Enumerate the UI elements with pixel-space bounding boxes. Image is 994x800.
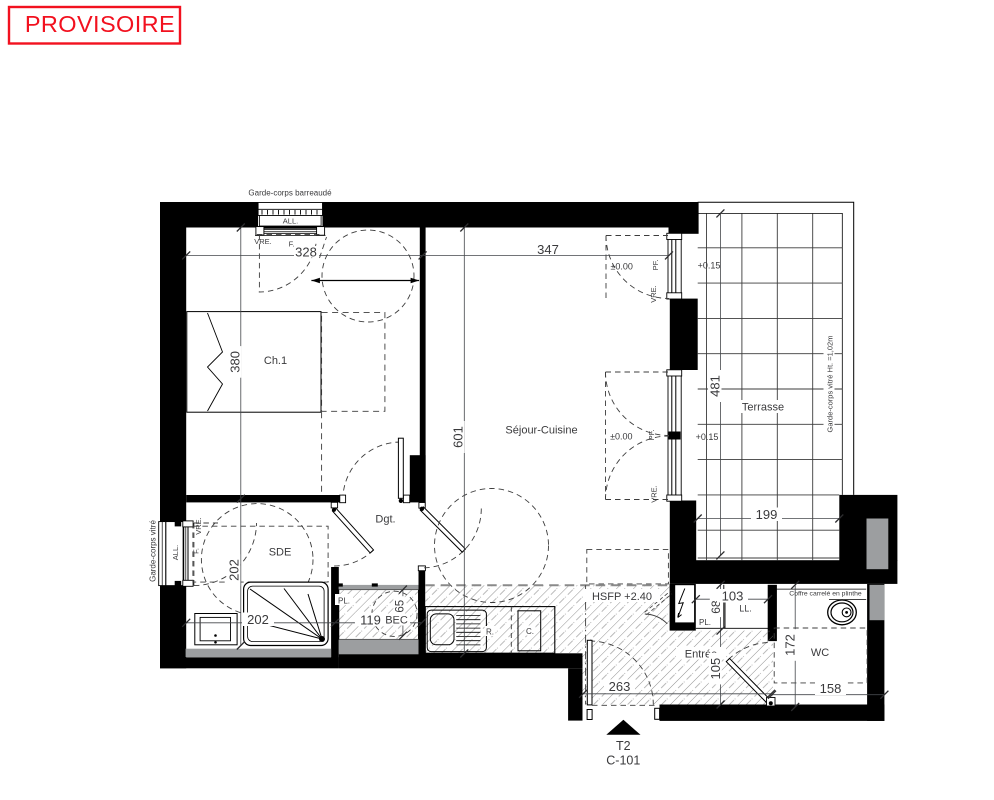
svg-text:WC: WC <box>811 647 829 659</box>
svg-text:ALL.: ALL. <box>283 217 298 226</box>
svg-text:Coffre carrelé en plinthe: Coffre carrelé en plinthe <box>789 590 862 597</box>
svg-text:172: 172 <box>782 634 797 656</box>
svg-text:Garde-corps vitré Ht. =1,02m: Garde-corps vitré Ht. =1,02m <box>825 336 834 433</box>
svg-text:Terrasse: Terrasse <box>742 402 784 414</box>
svg-text:SDE: SDE <box>269 547 292 559</box>
svg-text:+0.15: +0.15 <box>698 261 721 271</box>
svg-text:Garde-corps barreaudé: Garde-corps barreaudé <box>248 189 332 198</box>
svg-text:202: 202 <box>247 612 269 627</box>
svg-text:158: 158 <box>820 681 842 696</box>
svg-text:VRE.: VRE. <box>649 485 658 503</box>
svg-text:BEC: BEC <box>385 615 408 627</box>
svg-text:R.: R. <box>486 628 494 637</box>
svg-text:481: 481 <box>708 375 723 397</box>
svg-text:+0.15: +0.15 <box>696 432 719 442</box>
svg-text:±0.00: ±0.00 <box>610 432 632 442</box>
svg-text:65: 65 <box>395 600 407 613</box>
svg-text:103: 103 <box>722 589 744 604</box>
svg-text:ALL.: ALL. <box>171 545 180 560</box>
svg-text:F.: F. <box>192 548 201 554</box>
svg-text:C-101: C-101 <box>606 754 640 768</box>
svg-text:119: 119 <box>360 612 381 627</box>
svg-text:PF.: PF. <box>651 260 660 271</box>
svg-text:F.: F. <box>289 240 295 249</box>
svg-text:PF.: PF. <box>647 430 656 441</box>
svg-text:Dgt.: Dgt. <box>375 514 395 526</box>
svg-text:Ch.1: Ch.1 <box>264 355 287 367</box>
svg-text:199: 199 <box>756 507 778 522</box>
svg-text:PL.: PL. <box>699 618 711 627</box>
svg-text:T2: T2 <box>616 739 631 753</box>
svg-text:105: 105 <box>708 658 723 680</box>
svg-text:263: 263 <box>609 679 631 694</box>
svg-text:±0.00: ±0.00 <box>610 262 632 272</box>
svg-text:PROVISOIRE: PROVISOIRE <box>25 11 175 37</box>
svg-text:347: 347 <box>537 242 559 257</box>
svg-text:PL.: PL. <box>338 597 350 606</box>
svg-text:Séjour-Cuisine: Séjour-Cuisine <box>505 425 577 437</box>
svg-text:HSFP +2.40: HSFP +2.40 <box>592 591 652 603</box>
svg-text:380: 380 <box>227 351 242 373</box>
svg-text:328: 328 <box>295 245 317 260</box>
svg-text:VRE.: VRE. <box>254 237 272 246</box>
svg-text:LL.: LL. <box>739 604 752 614</box>
svg-text:C.: C. <box>526 627 534 636</box>
svg-text:Garde-corps vitré: Garde-corps vitré <box>148 520 157 582</box>
svg-text:202: 202 <box>226 559 241 581</box>
svg-text:601: 601 <box>451 426 466 448</box>
svg-text:VRE.: VRE. <box>649 285 658 303</box>
svg-text:VRE.: VRE. <box>194 517 203 535</box>
